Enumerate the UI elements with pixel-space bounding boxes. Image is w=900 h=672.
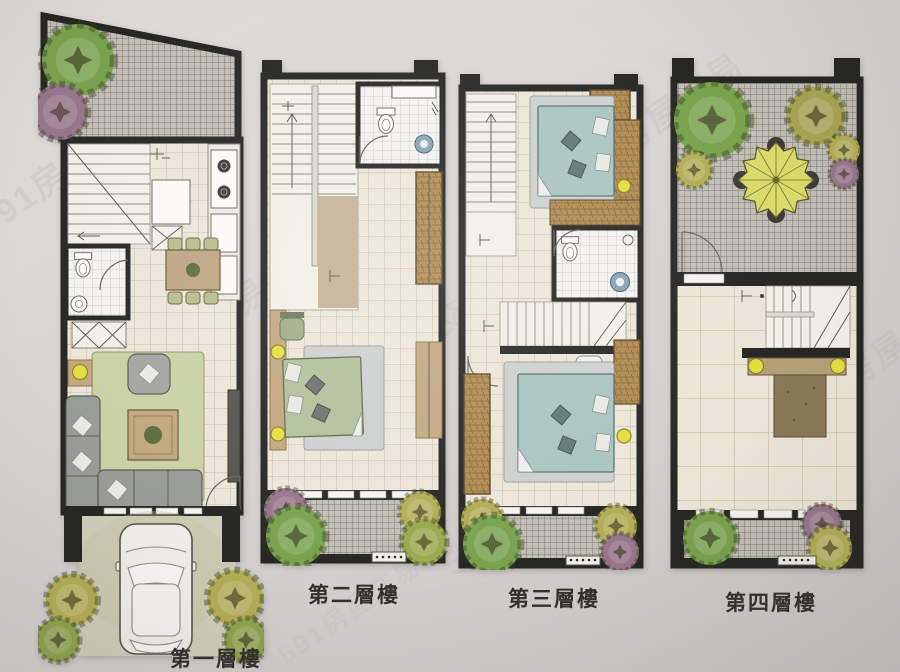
floor-plan-3 [454,74,648,570]
bed [283,346,384,450]
lamp-icon [618,180,631,193]
floor-1-label: 第一層樓 [170,643,262,672]
floor-plan-2 [256,60,450,566]
roof-terrace [674,82,860,286]
wardrobe [416,172,442,284]
bed [530,96,614,208]
shoe-cabinet [72,322,126,348]
dining-chair [168,238,182,250]
stove-burner [218,186,231,199]
sink-icon [71,296,87,312]
pillow [592,117,609,137]
staircase [270,84,358,310]
lamp-icon [831,359,846,374]
tree-icon [683,511,737,565]
lamp-icon [749,359,764,374]
bathroom [66,246,128,318]
floor-2-label: 第二層樓 [308,579,400,609]
dining-chair [186,292,200,304]
pillow [595,153,611,172]
dresser [416,342,442,438]
dining-chair [186,238,200,250]
tree-icon [674,82,750,158]
dining-chair [168,292,182,304]
pillow [592,395,609,415]
wardrobe [464,374,490,494]
tree-icon [676,152,712,188]
tree-icon [38,618,80,662]
coffee-table [128,410,178,460]
floor-plan-4 [666,58,870,570]
floor-4-label: 第四層樓 [725,587,817,617]
lamp-icon [271,345,285,359]
staircase [68,144,150,244]
car [116,524,196,654]
lamp-icon [271,427,285,441]
bush-icon [829,159,859,189]
staircase [466,94,516,256]
side-bench [614,340,640,404]
lamp-icon [73,365,88,380]
first-floor-interior [64,140,240,512]
stool [280,312,304,340]
dining-chair [204,238,218,250]
lamp-icon [617,429,631,443]
balcony [264,488,447,566]
balcony [461,499,640,570]
wood-floor-strip [550,200,640,225]
bathroom [358,84,442,166]
floor-plan-1 [38,8,264,668]
bush-icon [601,533,639,570]
toilet-icon [74,253,91,277]
appliance [152,180,190,224]
bed [504,362,614,482]
bathroom [554,228,640,300]
tv-console [228,390,240,482]
toilet-icon [377,108,395,134]
dining-table [166,238,220,304]
floor-3-label: 第三層樓 [508,583,600,613]
pillow [287,395,304,414]
toilet-icon [561,237,578,261]
side-table [68,360,92,386]
stove-burner [218,160,231,173]
pillow [595,433,611,452]
tree-icon [266,506,326,566]
plant-icon [186,263,200,277]
plant-icon [144,426,162,444]
dining-chair [204,292,218,304]
tree-icon [401,519,447,565]
staircase-mid [484,302,626,354]
armchair [128,354,170,394]
floorplan-photo: 591房屋交易 591房屋交易 591房屋交易 591房屋交易 591房屋交易 … [0,0,900,672]
bush-icon [38,84,88,140]
balcony [674,504,860,570]
